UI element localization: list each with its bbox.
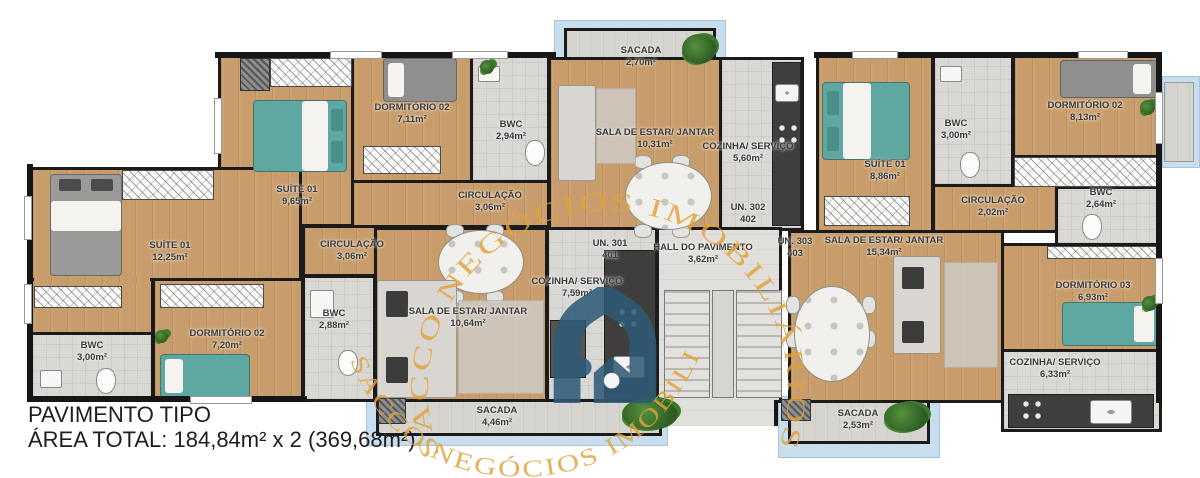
wardrobe-u301-dorm02: [160, 284, 264, 308]
total-area-text: ÁREA TOTAL: 184,84m² x 2 (369,68m²): [28, 427, 416, 453]
room-area: 10,64m²: [409, 318, 528, 330]
room-area: 3,06m²: [320, 251, 384, 263]
sofa-u303: [893, 256, 941, 354]
label-u303-sacada: SACADA 2,53m²: [838, 408, 879, 432]
room-name: SALA DE ESTAR/ JANTAR: [596, 127, 715, 139]
room-name: COZINHA/ SERVIÇO: [1009, 357, 1100, 369]
room-name: BWC: [319, 308, 349, 320]
room-name: CIRCULAÇÃO: [458, 190, 522, 202]
room-name: DORMITÓRIO 02: [1048, 100, 1123, 112]
unit-number: UN. 301: [593, 238, 628, 250]
unit-number-alt: 403: [778, 248, 813, 260]
room-area: 2,64m²: [1086, 199, 1116, 211]
room-name: BWC: [1086, 187, 1116, 199]
label-u303-circ: CIRCULAÇÃO 2,02m²: [961, 195, 1025, 219]
kitchen-sink-u303: [1090, 400, 1132, 424]
label-u301-circ: CIRCULAÇÃO 3,06m²: [320, 239, 384, 263]
room-area: 6,33m²: [1009, 369, 1100, 381]
room-area: 3,00m²: [77, 352, 107, 364]
plant: [682, 34, 716, 64]
window: [452, 51, 508, 59]
plant: [480, 60, 494, 74]
room-name: SUÍTE 01: [864, 159, 905, 171]
label-unit-303: UN. 303 403: [778, 236, 813, 260]
sofa-u302: [558, 85, 596, 181]
room-name: SUÍTE 01: [149, 240, 190, 252]
dining-table-u302: [625, 162, 712, 230]
wardrobe-u303-corridor: [1014, 157, 1158, 187]
room-name: DORMITÓRIO 02: [375, 102, 450, 114]
wardrobe-u303-dorm03: [1047, 246, 1160, 259]
room-name: DORMITÓRIO 03: [1056, 280, 1131, 292]
plant: [1140, 100, 1155, 115]
room-area: 3,06m²: [458, 202, 522, 214]
room-name: DORMITÓRIO 02: [190, 328, 265, 340]
window: [24, 284, 32, 324]
label-u301-bwc2: BWC 2,88m²: [319, 308, 349, 332]
label-u302-sacada: SACADA 2,70m²: [621, 45, 662, 69]
bed-u303-dorm02: [1060, 60, 1158, 98]
room-area: 2,70m²: [621, 57, 662, 69]
room-name: BWC: [496, 119, 526, 131]
page-title: PAVIMENTO TIPO: [28, 403, 416, 427]
rug-u302: [596, 88, 636, 164]
room-name: BWC: [941, 118, 971, 130]
room-area: 10,31m²: [596, 139, 715, 151]
room-area: 6,93m²: [1056, 292, 1131, 304]
window: [24, 196, 32, 240]
room-area: 8,86m²: [864, 171, 905, 183]
label-u302-bwc: BWC 2,94m²: [496, 119, 526, 143]
toilet-u301-bwc: [96, 368, 116, 394]
label-unit-302: UN. 302 402: [731, 202, 766, 226]
sink-u303-bwc: [940, 66, 962, 82]
label-u303-suite: SUÍTE 01 8,86m²: [864, 159, 905, 183]
room-name: HALL DO PAVIMENTO: [653, 242, 753, 254]
suite-seam-patch: [34, 276, 150, 284]
unit-number: UN. 303: [778, 236, 813, 248]
label-u302-suite: SUÍTE 01 9,65m²: [276, 184, 317, 208]
room-area: 2,88m²: [319, 320, 349, 332]
toilet-u303-bwc2: [1082, 214, 1102, 240]
floor-plan: SUÍTE 01 9,65m² DORMITÓRIO 02 7,11m² BWC…: [0, 0, 1200, 478]
wardrobe-u301-suite-bottom: [34, 286, 122, 308]
room-name: SUÍTE 01: [276, 184, 317, 196]
unit-number-alt: 401: [593, 250, 628, 262]
stairs-left-flight: [664, 290, 710, 398]
label-u301-sacada: SACADA 4,46m²: [477, 405, 518, 429]
room-name: CIRCULAÇÃO: [320, 239, 384, 251]
window: [852, 51, 898, 59]
room-area: 9,65m²: [276, 196, 317, 208]
room-area: 7,11m²: [375, 114, 450, 126]
right-edge-deck: [1164, 82, 1194, 162]
plant: [884, 402, 928, 432]
room-name: SALA DE ESTAR/ JANTAR: [825, 235, 944, 247]
room-name: SACADA: [838, 408, 879, 420]
wardrobe-u302-suite: [270, 58, 352, 87]
label-u301-sala: SALA DE ESTAR/ JANTAR 10,64m²: [409, 306, 528, 330]
stairs-center-rail: [712, 290, 734, 398]
room-area: 2,02m²: [961, 207, 1025, 219]
plant: [155, 330, 168, 343]
plan-footer: PAVIMENTO TIPO ÁREA TOTAL: 184,84m² x 2 …: [28, 403, 416, 454]
window: [214, 98, 222, 154]
label-hall: HALL DO PAVIMENTO 3,62m²: [653, 242, 753, 266]
room-name: BWC: [77, 340, 107, 352]
label-u301-suite: SUÍTE 01 12,25m²: [149, 240, 190, 264]
label-u302-sala: SALA DE ESTAR/ JANTAR 10,31m²: [596, 127, 715, 151]
closet-dark-u302-suite: [240, 58, 270, 91]
unit-number: UN. 302: [731, 202, 766, 214]
room-name: SACADA: [621, 45, 662, 57]
room-area: 4,46m²: [477, 417, 518, 429]
room-area: 8,13m²: [1048, 112, 1123, 124]
room-area: 7,20m²: [190, 340, 265, 352]
unit-number-alt: 402: [731, 214, 766, 226]
label-u302-dorm02: DORMITÓRIO 02 7,11m²: [375, 102, 450, 126]
bed-u301-suite: [50, 174, 122, 276]
label-u303-dorm02: DORMITÓRIO 02 8,13m²: [1048, 100, 1123, 124]
room-name: SACADA: [477, 405, 518, 417]
label-u302-cozinha: COZINHA/ SERVIÇO 5,60m²: [702, 141, 793, 165]
room-name: SALA DE ESTAR/ JANTAR: [409, 306, 528, 318]
room-area: 3,62m²: [653, 254, 753, 266]
rug-u303: [944, 262, 998, 368]
label-u303-sala: SALA DE ESTAR/ JANTAR 15,34m²: [825, 235, 944, 259]
hatch-sacada-right: [781, 399, 811, 421]
label-u301-bwc: BWC 3,00m²: [77, 340, 107, 364]
bed-u302-dorm02: [383, 58, 457, 102]
room-name: CIRCULAÇÃO: [961, 195, 1025, 207]
window: [1155, 92, 1163, 144]
kitchen-sink-u302: [775, 84, 799, 102]
label-u303-dorm03: DORMITÓRIO 03 6,93m²: [1056, 280, 1131, 304]
bed-u301-dorm02: [160, 354, 250, 398]
wardrobe-u303-suite: [824, 196, 910, 226]
label-u302-circ: CIRCULAÇÃO 3,06m²: [458, 190, 522, 214]
bed-u302-suite: [253, 100, 347, 172]
brand-logo-house-icon: [549, 287, 661, 403]
label-unit-301: UN. 301 401: [593, 238, 628, 262]
label-u303-bwc2: BWC 2,64m²: [1086, 187, 1116, 211]
wardrobe-u302-dorm02: [363, 146, 441, 174]
room-area: 15,34m²: [825, 247, 944, 259]
toilet-u301-bwc2: [338, 350, 358, 376]
label-u301-dorm02: DORMITÓRIO 02 7,20m²: [190, 328, 265, 352]
toilet-u303-bwc: [960, 152, 980, 178]
wardrobe-u301-suite-top: [122, 170, 214, 200]
room-area: 3,00m²: [941, 130, 971, 142]
sink-u301-bwc: [40, 370, 62, 388]
room-area: 5,60m²: [702, 153, 793, 165]
window: [1155, 258, 1163, 304]
label-u303-cozinha: COZINHA/ SERVIÇO 6,33m²: [1009, 357, 1100, 381]
label-u303-bwc: BWC 3,00m²: [941, 118, 971, 142]
window: [330, 51, 382, 59]
stove-u303: [1020, 398, 1046, 424]
sofa-u301: [377, 280, 457, 398]
bed-u303-suite: [822, 82, 910, 160]
stairs-right-flight: [736, 290, 782, 398]
room-area: 12,25m²: [149, 252, 190, 264]
dining-table-u303: [794, 286, 870, 382]
room-area: 2,94m²: [496, 131, 526, 143]
room-name: COZINHA/ SERVIÇO: [702, 141, 793, 153]
toilet-u302-bwc: [525, 140, 545, 166]
window: [1078, 51, 1128, 59]
room-area: 2,53m²: [838, 420, 879, 432]
